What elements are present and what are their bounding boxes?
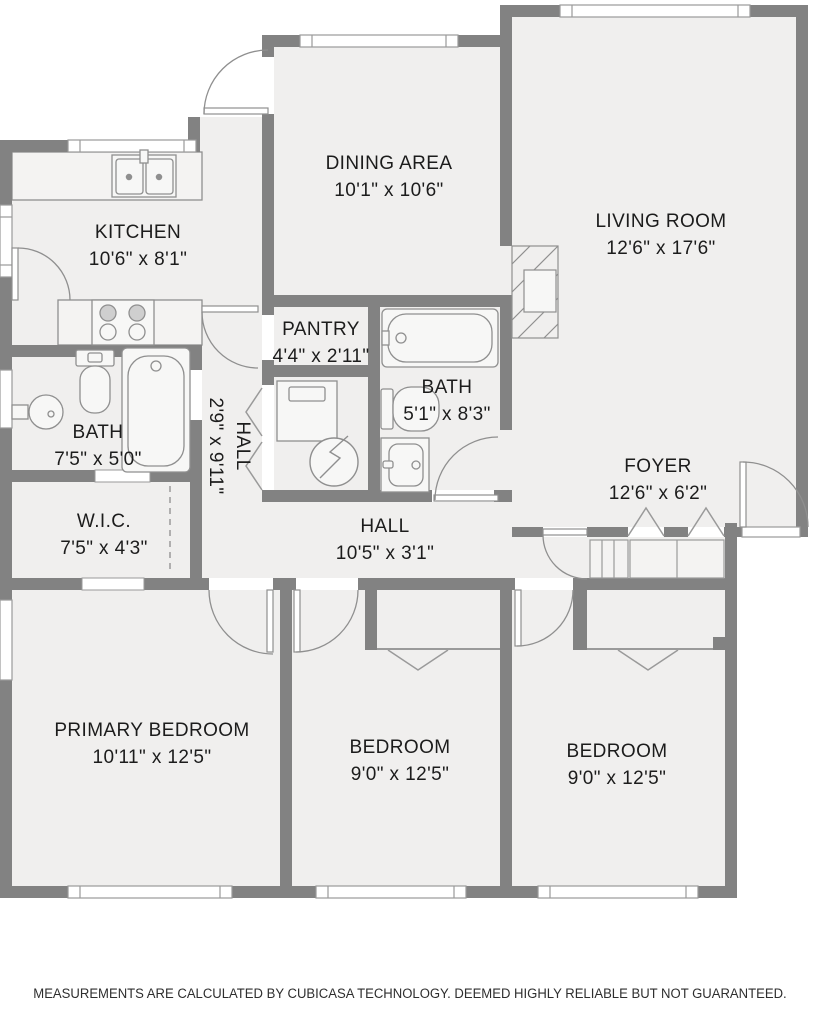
- bathtub-main-icon: [382, 309, 498, 367]
- bathtub-icon: [122, 348, 190, 472]
- closet-shelving: [590, 540, 724, 578]
- disclaimer-text: MEASUREMENTS ARE CALCULATED BY CUBICASA …: [12, 986, 807, 1001]
- floorplan-graphic: [0, 0, 820, 1009]
- vanity-icon: [381, 438, 429, 492]
- stove-icon: [92, 300, 154, 345]
- toilet-main-icon: [381, 387, 439, 431]
- floorplan-page: DINING AREA 10'1" x 10'6" LIVING ROOM 12…: [0, 0, 820, 1009]
- washer-icon: [277, 381, 337, 441]
- fireplace-icon: [512, 246, 558, 338]
- kitchen-sink-icon: [112, 150, 176, 197]
- toilet-icon: [76, 350, 114, 413]
